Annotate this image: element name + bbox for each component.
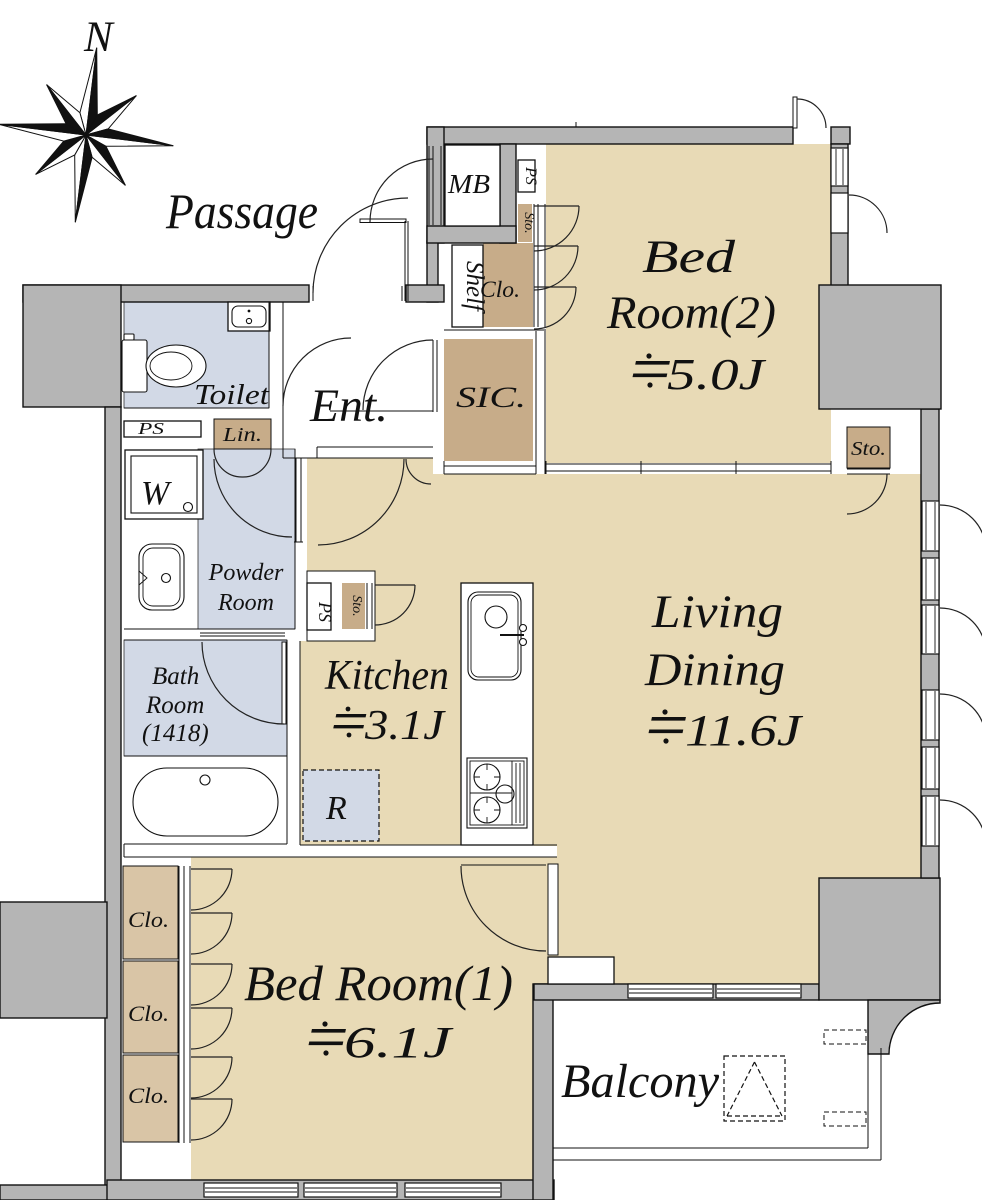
svg-text:MB: MB — [447, 169, 490, 199]
svg-text:Living: Living — [651, 586, 783, 638]
svg-text:Bed Room(1): Bed Room(1) — [244, 955, 513, 1011]
svg-text:6.1J: 6.1J — [344, 1018, 455, 1067]
svg-text:R: R — [325, 790, 347, 827]
svg-text:(1418): (1418) — [142, 720, 209, 747]
svg-text:Ent.: Ent. — [309, 380, 388, 432]
svg-text:Lin.: Lin. — [222, 424, 262, 446]
svg-text:Clo.: Clo. — [128, 907, 169, 932]
svg-text:N: N — [83, 14, 115, 61]
svg-text:PS: PS — [315, 601, 335, 622]
svg-text:W: W — [141, 475, 172, 512]
svg-text:SIC.: SIC. — [456, 381, 526, 414]
svg-text:Toilet: Toilet — [194, 379, 270, 411]
svg-text:PS: PS — [522, 166, 539, 185]
svg-text:Dining: Dining — [644, 644, 785, 696]
svg-text:Sto.: Sto. — [521, 212, 536, 233]
svg-text:Balcony: Balcony — [561, 1055, 720, 1108]
svg-text:Sto.: Sto. — [851, 438, 886, 460]
svg-text:Room: Room — [217, 590, 274, 616]
svg-text:Kitchen: Kitchen — [324, 653, 449, 699]
svg-text:Bath: Bath — [152, 663, 199, 690]
svg-text:11.6J: 11.6J — [685, 706, 804, 755]
svg-text:Passage: Passage — [165, 183, 318, 239]
svg-text:Clo.: Clo. — [128, 1001, 169, 1026]
svg-text:Clo.: Clo. — [128, 1083, 169, 1108]
svg-text:Clo.: Clo. — [480, 277, 520, 302]
svg-text:Room(2): Room(2) — [606, 287, 776, 339]
svg-text:Room: Room — [145, 692, 204, 719]
svg-text:PS: PS — [137, 419, 165, 438]
svg-text:Powder: Powder — [208, 560, 284, 586]
svg-text:3.1J: 3.1J — [364, 703, 447, 749]
svg-text:5.0J: 5.0J — [667, 350, 767, 399]
svg-text:Sto.: Sto. — [349, 595, 364, 616]
svg-text:Bed: Bed — [642, 231, 736, 283]
